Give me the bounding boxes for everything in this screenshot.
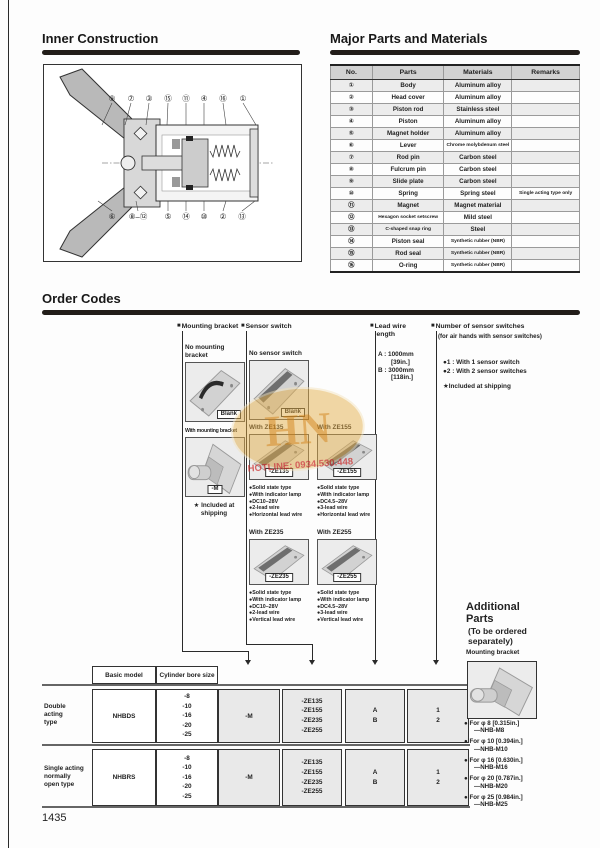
feature-item: ●Horizontal lead wire (249, 512, 311, 519)
switch-option: -ZE235 (302, 778, 323, 788)
page-number: 1435 (42, 812, 66, 824)
part-material: Mild steel (444, 212, 512, 224)
additional-part-option: ● For φ 10 [0.394in.]—NHB-M10 (464, 738, 523, 753)
switch-count-header-label: Number of sensor switches (436, 323, 525, 331)
feature-list: ●Solid state type●With indicator lamp●DC… (317, 485, 379, 519)
sensor-switch-header: ■ Sensor switch (241, 323, 292, 331)
part-name: C-shaped snap ring (372, 224, 444, 236)
part-no: ⑮ (331, 248, 373, 260)
no-sensor-switch-label: No sensor switch (249, 350, 311, 358)
materials-row: ⑫Hexagon socket setscrewMild steel (331, 212, 580, 224)
materials-row: ⑯O-ringSynthetic rubber (NBR) (331, 260, 580, 273)
sensor-switch-photo: -ZE155 (317, 434, 377, 480)
table-rule-middle (42, 744, 470, 746)
no-sensor-switch-option: No sensor switch Blank (249, 350, 311, 420)
additional-parts-item-label: Mounting bracket (466, 649, 519, 656)
part-name: Piston rod (372, 104, 444, 116)
callout-number: ④ (201, 94, 208, 103)
count-option: 1 (436, 706, 440, 716)
materials-row: ⑧Fulcrum pinCarbon steel (331, 164, 580, 176)
materials-row: ⑭Piston sealSynthetic rubber (NBR) (331, 236, 580, 248)
part-name: Magnet (372, 200, 444, 212)
switch-option: -ZE255 (302, 726, 323, 736)
square-bullet-icon: ■ (370, 323, 374, 331)
sensor-option-label: With ZE235 (249, 529, 311, 537)
materials-rule (330, 50, 580, 55)
row-label-line: open type (44, 781, 84, 789)
part-remark (512, 224, 580, 236)
part-material: Aluminum alloy (444, 92, 512, 104)
page-left-edge (8, 0, 9, 848)
switch-cell: -ZE135-ZE155-ZE235-ZE255 (282, 749, 342, 806)
bore-option: -10 (182, 702, 191, 712)
catalog-page: Inner Construction ⑨⑦③⑮⑪④⑯①⑥⑧–⑫⑤⑭⑩②⑬ Maj… (0, 0, 600, 848)
with-mounting-bracket-photo: -M (185, 437, 245, 497)
feature-item: ●Solid state type (249, 485, 311, 492)
lead-cell: AB (345, 749, 405, 806)
part-remark (512, 164, 580, 176)
part-material: Steel (444, 224, 512, 236)
feature-item: ●Solid state type (317, 590, 379, 597)
part-material: Chrome molybdenum steel (444, 140, 512, 152)
lead-option: B (373, 778, 378, 788)
lead-wire-line: A : 1000mm (378, 351, 414, 359)
order-code-chip: Blank (281, 408, 305, 418)
order-code-chip: -ZE255 (333, 573, 361, 583)
switch-count-options: ●1 : With 1 sensor switch●2 : With 2 sen… (443, 359, 527, 376)
magnet-upper (172, 139, 180, 149)
additional-part-option: ● For φ 8 [0.315in.]—NHB-M8 (464, 720, 523, 735)
order-codes-title: Order Codes (42, 291, 121, 306)
square-bullet-icon: ■ (177, 323, 181, 331)
basic-model-header: Basic model (92, 666, 156, 684)
sensor-switch-photo: -ZE235 (249, 539, 309, 585)
part-remark (512, 140, 580, 152)
callout-leader-line (223, 103, 226, 125)
materials-row: ④PistonAluminum alloy (331, 116, 580, 128)
additional-part-option: ● For φ 20 [0.787in.]—NHB-M20 (464, 775, 523, 790)
part-remark (512, 128, 580, 140)
part-no: ⑭ (331, 236, 373, 248)
part-no: ③ (331, 104, 373, 116)
callout-leader-line (243, 103, 256, 125)
materials-row: ⑬C-shaped snap ringSteel (331, 224, 580, 236)
bore-cell: -8-10-16-20-25 (156, 749, 218, 806)
with-mounting-bracket-option: With mounting bracket -M ★ Included at s… (185, 427, 247, 518)
bracket-cell: -M (218, 749, 280, 806)
feature-item: ●Solid state type (249, 590, 311, 597)
bore-option: -10 (182, 763, 191, 773)
part-name: Hexagon socket setscrew (372, 212, 444, 224)
part-name: Body (372, 80, 444, 92)
part-name: Magnet holder (372, 128, 444, 140)
sensor-option-ze255: With ZE255 -ZE255 ●Solid state type●With… (317, 529, 379, 624)
switch-count-note: ★Included at shipping (443, 382, 511, 390)
callout-number: ⑬ (238, 212, 246, 221)
feature-item: ●3-lead wire (317, 505, 379, 512)
part-no: ⑬ (331, 224, 373, 236)
no-mounting-bracket-option: No mounting bracket Blank (185, 344, 247, 422)
sensor-arrow (309, 660, 315, 665)
part-remark (512, 260, 580, 273)
callout-number: ⑨ (109, 94, 116, 103)
bore-option: -8 (184, 692, 190, 702)
part-material: Synthetic rubber (NBR) (444, 236, 512, 248)
part-remark: Single acting type only (512, 188, 580, 200)
materials-table-body: ①BodyAluminum alloy②Head coverAluminum a… (331, 80, 580, 273)
order-code-chip: -ZE155 (333, 468, 361, 478)
inner-construction-rule (42, 50, 300, 55)
part-material: Spring steel (444, 188, 512, 200)
row-label-double-acting: Doubleactingtype (44, 689, 66, 741)
part-material: Aluminum alloy (444, 116, 512, 128)
row-label-line: acting (44, 711, 66, 719)
materials-row: ⑤Magnet holderAluminum alloy (331, 128, 580, 140)
sensor-switch-photo: -ZE135 (249, 434, 309, 480)
materials-row: ⑨Slide plateCarbon steel (331, 176, 580, 188)
feature-item: ●DC10–28V (249, 604, 311, 611)
mounting-connector-drop (248, 651, 249, 660)
sensor-connector-bend (246, 644, 312, 645)
callout-leader-line (223, 201, 226, 211)
head-cover (250, 129, 258, 197)
row-label-line: Single acting (44, 765, 84, 773)
switch-count-connector-line (436, 331, 437, 660)
part-no: ④ (331, 116, 373, 128)
feature-item: ●3-lead wire (317, 610, 379, 617)
part-remark (512, 212, 580, 224)
no-mounting-bracket-label: No mounting bracket (185, 344, 247, 360)
part-remark (512, 200, 580, 212)
bore-option: -25 (182, 792, 191, 802)
feature-item: ●Horizontal lead wire (317, 512, 379, 519)
lead-wire-line: [118in.] (378, 374, 414, 382)
count-option: 1 (436, 768, 440, 778)
part-remark (512, 152, 580, 164)
lead-wire-header-label: Lead wire length (375, 323, 406, 338)
bore-option: -25 (182, 730, 191, 740)
sensor-option-ze135: With ZE135 -ZE135 ●Solid state type●With… (249, 424, 311, 519)
callout-number: ⑮ (164, 94, 172, 103)
switch-count-subheader: (for air hands with sensor switches) (438, 333, 542, 340)
part-name: Spring (372, 188, 444, 200)
part-name: O-ring (372, 260, 444, 273)
additional-part-code: —NHB-M8 (464, 727, 523, 734)
sensor-option-ze235: With ZE235 -ZE235 ●Solid state type●With… (249, 529, 311, 624)
part-material: Carbon steel (444, 176, 512, 188)
sensor-connector-drop (312, 644, 313, 660)
switch-option: -ZE155 (302, 768, 323, 778)
mounting-arrow (245, 660, 251, 665)
feature-item: ●With indicator lamp (249, 492, 311, 499)
additional-parts-subtitle: (To be ordered separately) (468, 627, 527, 646)
lead-option: A (373, 706, 378, 716)
callout-leader-line (242, 201, 255, 211)
part-material: Synthetic rubber (NBR) (444, 260, 512, 273)
lead-wire-line: B : 3000mm (378, 367, 414, 375)
col-materials: Materials (444, 65, 512, 80)
part-name: Piston (372, 116, 444, 128)
part-name: Head cover (372, 92, 444, 104)
bore-option: -20 (182, 782, 191, 792)
square-bullet-icon: ■ (241, 323, 245, 331)
part-material: Stainless steel (444, 104, 512, 116)
model-cell: NHBDS (92, 689, 156, 743)
count-cell: 12 (407, 689, 469, 743)
part-no: ⑩ (331, 188, 373, 200)
mounting-bracket-header-label: Mounting bracket (182, 323, 239, 331)
callout-number: ⑭ (182, 212, 190, 221)
no-mounting-bracket-photo: Blank (185, 362, 245, 422)
switch-count-arrow (433, 660, 439, 665)
callout-number: ⑤ (165, 212, 172, 221)
lead-wire-line: [39in.] (378, 359, 414, 367)
feature-item: ●With indicator lamp (317, 597, 379, 604)
magnet-lower (172, 177, 180, 187)
bore-option: -16 (182, 773, 191, 783)
mounting-connector-line (182, 331, 183, 651)
bracket-photo-drawing (468, 662, 536, 718)
row-label-line: normally (44, 773, 84, 781)
lead-option: B (373, 716, 378, 726)
callout-number: ⑦ (128, 94, 135, 103)
switch-count-option: ●2 : With 2 sensor switches (443, 368, 527, 377)
bore-option: -16 (182, 711, 191, 721)
additional-part-code: —NHB-M25 (464, 801, 523, 808)
part-remark (512, 248, 580, 260)
materials-title: Major Parts and Materials (330, 31, 488, 46)
materials-row: ③Piston rodStainless steel (331, 104, 580, 116)
row-label-line: type (44, 719, 66, 727)
callout-number: ② (220, 212, 227, 221)
included-at-shipping-note: ★ Included at shipping (185, 502, 243, 518)
materials-row: ⑥LeverChrome molybdenum steel (331, 140, 580, 152)
lead-option: A (373, 768, 378, 778)
additional-part-code: —NHB-M20 (464, 783, 523, 790)
order-code-chip: -M (208, 485, 223, 495)
feature-item: ●Vertical lead wire (249, 617, 311, 624)
part-material: Carbon steel (444, 164, 512, 176)
feature-item: ●DC10–28V (249, 499, 311, 506)
part-material: Aluminum alloy (444, 80, 512, 92)
bore-option: -20 (182, 721, 191, 731)
col-remarks: Remarks (512, 65, 580, 80)
col-no: No. (331, 65, 373, 80)
additional-mounting-bracket-photo (467, 661, 537, 719)
row-label-single-acting: Single actingnormallyopen type (44, 749, 84, 804)
col-parts: Parts (372, 65, 444, 80)
switch-option: -ZE135 (302, 758, 323, 768)
table-rule-bottom (42, 806, 470, 808)
part-no: ⑪ (331, 200, 373, 212)
switch-option: -ZE255 (302, 787, 323, 797)
materials-table: No. Parts Materials Remarks ①BodyAluminu… (330, 64, 580, 273)
part-material: Synthetic rubber (NBR) (444, 248, 512, 260)
square-bullet-icon: ■ (431, 323, 435, 331)
sensor-option-label: With ZE135 (249, 424, 311, 432)
switch-option: -ZE155 (302, 706, 323, 716)
feature-item: ●2-lead wire (249, 505, 311, 512)
materials-row: ①BodyAluminum alloy (331, 80, 580, 92)
sensor-switch-photo: -ZE255 (317, 539, 377, 585)
additional-parts-title: Additional Parts (466, 601, 520, 625)
with-mounting-bracket-label: With mounting bracket (185, 427, 247, 435)
lead-wire-options: A : 1000mm[39in.]B : 3000mm[118in.] (378, 351, 414, 382)
part-material: Magnet material (444, 200, 512, 212)
sensor-switch-header-label: Sensor switch (246, 323, 292, 331)
part-material: Aluminum alloy (444, 128, 512, 140)
part-remark (512, 176, 580, 188)
row-label-line: Double (44, 703, 66, 711)
part-remark (512, 116, 580, 128)
additional-part-code: —NHB-M10 (464, 746, 523, 753)
inner-construction-diagram: ⑨⑦③⑮⑪④⑯①⑥⑧–⑫⑤⑭⑩②⑬ (43, 64, 302, 262)
part-remark (512, 92, 580, 104)
part-no: ① (331, 80, 373, 92)
feature-item: ●2-lead wire (249, 610, 311, 617)
materials-row: ②Head coverAluminum alloy (331, 92, 580, 104)
count-option: 2 (436, 778, 440, 788)
callout-number: ⑩ (201, 212, 208, 221)
additional-part-code: —NHB-M16 (464, 764, 523, 771)
bore-size-header: Cylinder bore size (156, 666, 218, 684)
additional-part-size: ● For φ 20 [0.787in.] (464, 775, 523, 782)
materials-row: ⑮Rod sealSynthetic rubber (NBR) (331, 248, 580, 260)
gripper-cross-section-drawing: ⑨⑦③⑮⑪④⑯①⑥⑧–⑫⑤⑭⑩②⑬ (44, 65, 301, 261)
part-no: ⑫ (331, 212, 373, 224)
feature-item: ●Solid state type (317, 485, 379, 492)
sensor-option-label: With ZE255 (317, 529, 379, 537)
additional-part-size: ● For φ 10 [0.394in.] (464, 738, 523, 745)
switch-count-header: ■ Number of sensor switches (431, 323, 524, 331)
mounting-bracket-header: ■ Mounting bracket (177, 323, 238, 331)
part-no: ⑨ (331, 176, 373, 188)
part-no: ⑤ (331, 128, 373, 140)
order-code-chip: -ZE135 (265, 468, 293, 478)
part-remark (512, 236, 580, 248)
callout-number: ⑧–⑫ (129, 212, 148, 221)
switch-option: -ZE135 (302, 697, 323, 707)
count-cell: 12 (407, 749, 469, 806)
table-rule-top (42, 684, 470, 686)
part-no: ⑦ (331, 152, 373, 164)
part-name: Slide plate (372, 176, 444, 188)
feature-list: ●Solid state type●With indicator lamp●DC… (249, 485, 311, 519)
feature-item: ●DC4.5–28V (317, 499, 379, 506)
part-material: Carbon steel (444, 152, 512, 164)
no-sensor-switch-photo: Blank (249, 360, 309, 420)
lead-wire-arrow (372, 660, 378, 665)
bracket-cell: -M (218, 689, 280, 743)
callout-number: ③ (146, 94, 153, 103)
feature-item: ●With indicator lamp (249, 597, 311, 604)
additional-part-size: ● For φ 8 [0.315in.] (464, 720, 523, 727)
part-no: ⑧ (331, 164, 373, 176)
bore-cell: -8-10-16-20-25 (156, 689, 218, 743)
additional-options: ● For φ 8 [0.315in.]—NHB-M8● For φ 10 [0… (464, 720, 523, 812)
feature-item: ●Vertical lead wire (317, 617, 379, 624)
piston-seal-lower (186, 185, 193, 190)
callout-number: ⑥ (109, 212, 116, 221)
switch-cell: -ZE135-ZE155-ZE235-ZE255 (282, 689, 342, 743)
count-option: 2 (436, 716, 440, 726)
lead-cell: AB (345, 689, 405, 743)
feature-item: ●DC4.5–28V (317, 604, 379, 611)
feature-list: ●Solid state type●With indicator lamp●DC… (317, 590, 379, 624)
feature-list: ●Solid state type●With indicator lamp●DC… (249, 590, 311, 624)
inner-construction-title: Inner Construction (42, 31, 158, 46)
callout-number: ⑪ (182, 94, 190, 103)
materials-row: ⑩SpringSpring steelSingle acting type on… (331, 188, 580, 200)
callout-number: ⑯ (219, 94, 227, 103)
piston (182, 139, 208, 187)
piston-seal-upper (186, 136, 193, 141)
part-name: Rod pin (372, 152, 444, 164)
part-no: ⑯ (331, 260, 373, 273)
part-remark (512, 104, 580, 116)
additional-part-size: ● For φ 16 [0.630in.] (464, 757, 523, 764)
bore-option: -8 (184, 754, 190, 764)
callout-leader-line (167, 103, 168, 125)
callout-number: ① (240, 94, 247, 103)
materials-row: ⑪MagnetMagnet material (331, 200, 580, 212)
part-name: Rod seal (372, 248, 444, 260)
sensor-option-ze155: With ZE155 -ZE155 ●Solid state type●With… (317, 424, 379, 519)
model-cell: NHBRS (92, 749, 156, 806)
part-no: ⑥ (331, 140, 373, 152)
switch-count-option: ●1 : With 1 sensor switch (443, 359, 527, 368)
feature-item: ●With indicator lamp (317, 492, 379, 499)
part-no: ② (331, 92, 373, 104)
switch-option: -ZE235 (302, 716, 323, 726)
materials-header-row: No. Parts Materials Remarks (331, 65, 580, 80)
additional-part-option: ● For φ 16 [0.630in.]—NHB-M16 (464, 757, 523, 772)
part-remark (512, 80, 580, 92)
additional-part-size: ● For φ 25 [0.984in.] (464, 794, 523, 801)
part-name: Piston seal (372, 236, 444, 248)
part-name: Lever (372, 140, 444, 152)
order-codes-rule (42, 310, 580, 315)
additional-part-option: ● For φ 25 [0.984in.]—NHB-M25 (464, 794, 523, 809)
rod-pin (121, 156, 135, 170)
order-code-chip: -ZE235 (265, 573, 293, 583)
mounting-connector-bend (182, 651, 249, 652)
order-code-chip: Blank (217, 410, 241, 420)
part-name: Fulcrum pin (372, 164, 444, 176)
sensor-option-label: With ZE155 (317, 424, 379, 432)
materials-row: ⑦Rod pinCarbon steel (331, 152, 580, 164)
